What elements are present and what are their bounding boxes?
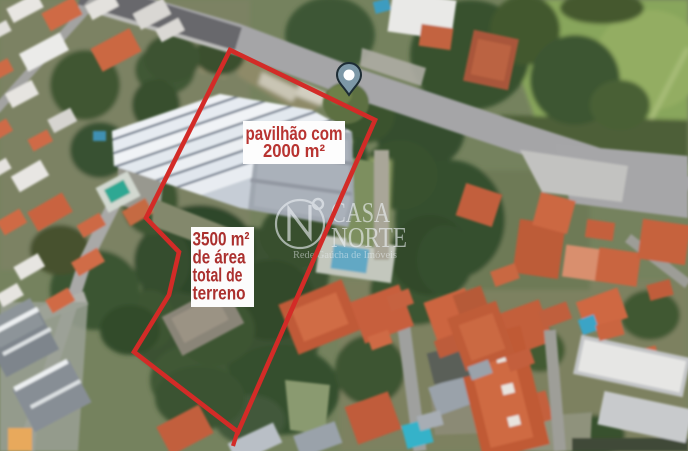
svg-text:2000 m²: 2000 m² [263,141,325,161]
svg-text:Rede Gaúcha de Imóveis: Rede Gaúcha de Imóveis [293,250,397,261]
svg-text:terreno: terreno [193,284,246,305]
